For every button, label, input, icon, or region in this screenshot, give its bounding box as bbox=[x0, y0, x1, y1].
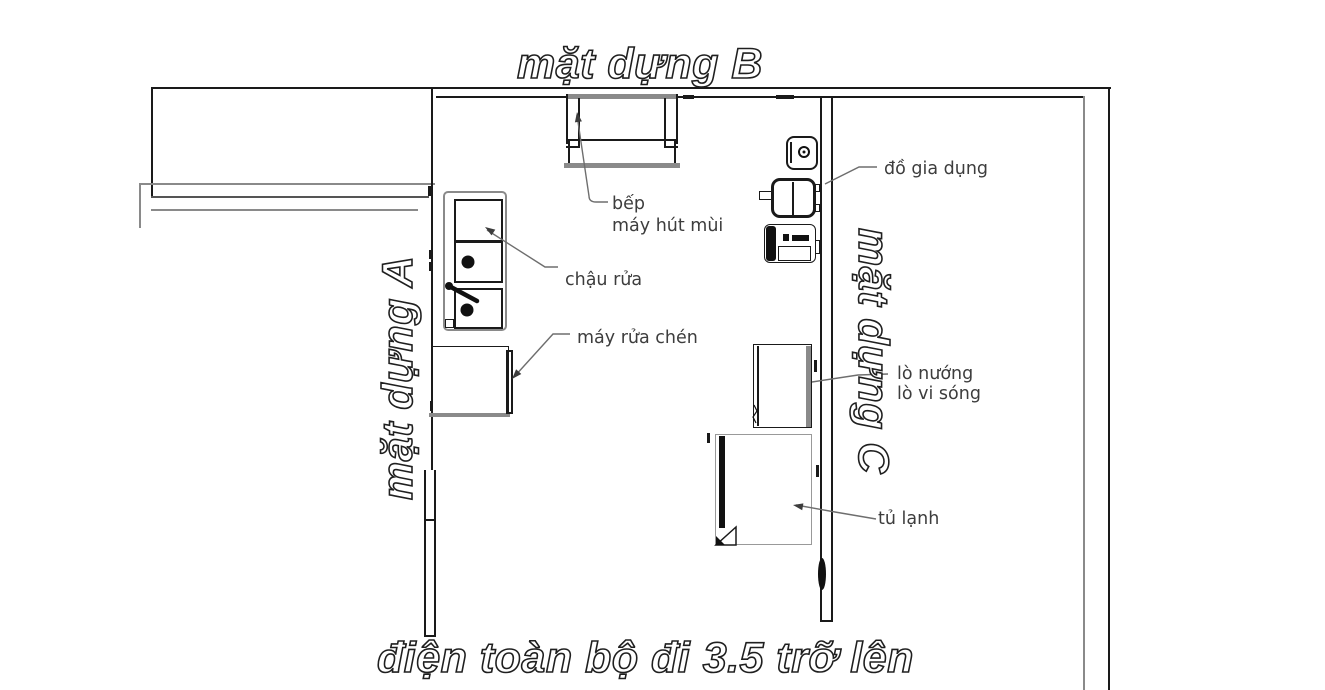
blender-slot bbox=[792, 235, 809, 241]
wall-kitchen-right bbox=[820, 96, 822, 622]
outlet-tick bbox=[429, 250, 432, 259]
counter-line bbox=[151, 196, 429, 198]
kettle-detail bbox=[790, 142, 792, 163]
hood-line bbox=[566, 139, 678, 141]
hood-top-bar bbox=[566, 94, 678, 99]
pot-hinge bbox=[815, 204, 820, 212]
label-sink: chậu rửa bbox=[565, 269, 642, 291]
outlet-tick bbox=[428, 186, 432, 196]
counter-line bbox=[151, 209, 418, 211]
blender-slot bbox=[783, 234, 789, 241]
label-appliances: đồ gia dụng bbox=[884, 158, 988, 180]
blender-base bbox=[778, 246, 811, 261]
label-hood: bếp máy hút mùi bbox=[612, 193, 723, 237]
hood-bottom-bar bbox=[564, 163, 680, 168]
pot-handle bbox=[759, 191, 772, 200]
outlet-tick bbox=[429, 262, 432, 271]
elevation-title-c: mặt dựng C bbox=[848, 228, 897, 474]
counter-line bbox=[139, 183, 435, 185]
leader-hood bbox=[577, 115, 608, 202]
oven-side-bar bbox=[806, 346, 811, 427]
wall-kitchen-left-double bbox=[424, 470, 426, 637]
label-dishwasher: máy rửa chén bbox=[577, 327, 698, 349]
hood-line bbox=[674, 141, 676, 165]
counter-edge bbox=[139, 183, 141, 228]
label-hood-line2: máy hút mùi bbox=[612, 216, 723, 236]
wall-right-outer bbox=[1108, 87, 1110, 690]
pot-hinge bbox=[815, 184, 820, 192]
outlet-tick bbox=[776, 95, 794, 99]
fridge-door-bar bbox=[719, 436, 725, 528]
label-oven: lò nướng lò vi sóng bbox=[897, 364, 981, 404]
sink-basin bbox=[454, 288, 503, 329]
elevation-title-b: mặt dựng B bbox=[517, 40, 763, 89]
pot-divider bbox=[792, 182, 794, 215]
wall-left-outer bbox=[151, 87, 153, 198]
sink-corner-detail bbox=[445, 319, 454, 328]
label-oven-line2: lò vi sóng bbox=[897, 384, 981, 404]
wall-right-inner bbox=[1083, 96, 1085, 690]
fridge-body bbox=[715, 434, 812, 545]
label-fridge: tủ lạnh bbox=[878, 508, 939, 530]
sink-basin bbox=[454, 241, 503, 283]
blender-cap bbox=[766, 226, 776, 261]
wall-kitchen-right bbox=[831, 96, 833, 622]
outlet-tick bbox=[683, 95, 694, 99]
hood-line bbox=[676, 94, 678, 144]
arrowhead-icon bbox=[512, 369, 521, 379]
oven-body bbox=[753, 344, 812, 428]
hood-line bbox=[568, 141, 570, 165]
oven-door-line bbox=[757, 346, 759, 426]
wall-kitchen-left-double bbox=[434, 470, 436, 637]
floor-plan: mặt dựng B mặt dựng A mặt dựng C điện to… bbox=[0, 0, 1325, 690]
hood-line bbox=[566, 94, 568, 144]
dishwasher-door-bar bbox=[506, 350, 513, 414]
elevation-title-a: mặt dựng A bbox=[374, 256, 423, 500]
dishwasher-body bbox=[431, 346, 509, 416]
hood-line bbox=[664, 146, 678, 148]
outlet-tick bbox=[816, 465, 819, 477]
blender-hinge bbox=[815, 240, 820, 254]
wall-tick bbox=[424, 519, 436, 521]
label-hood-line1: bếp bbox=[612, 194, 645, 214]
sink-basin bbox=[454, 199, 503, 242]
electrical-note: điện toàn bộ đi 3.5 trỡ lên bbox=[377, 634, 914, 683]
outlet-tick bbox=[814, 360, 817, 372]
pot-body bbox=[771, 178, 816, 218]
dishwasher-front bbox=[429, 413, 510, 417]
outlet-tick bbox=[707, 433, 710, 443]
wall-top-inner bbox=[436, 96, 1084, 98]
wall-cap bbox=[820, 620, 833, 622]
leader-dishwasher bbox=[514, 334, 570, 377]
label-oven-line1: lò nướng bbox=[897, 364, 973, 384]
